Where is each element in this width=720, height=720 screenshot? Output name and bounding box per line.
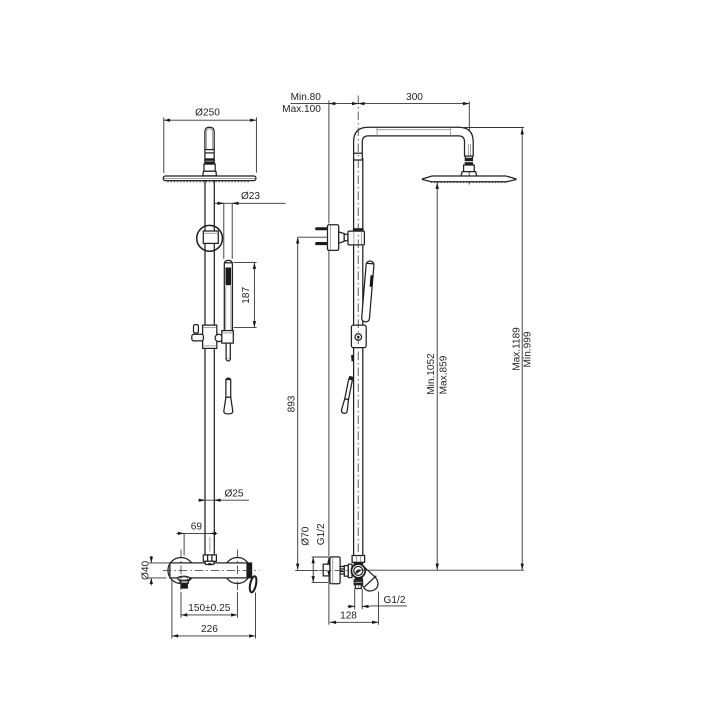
- svg-text:G1/2: G1/2: [384, 595, 406, 606]
- svg-text:187: 187: [241, 286, 252, 303]
- svg-text:Min.999: Min.999: [523, 331, 534, 367]
- svg-text:Max.100: Max.100: [282, 104, 321, 115]
- svg-text:Max.1189: Max.1189: [511, 327, 522, 371]
- svg-text:Min.1052: Min.1052: [426, 353, 437, 395]
- svg-text:226: 226: [201, 624, 218, 635]
- svg-text:Ø250: Ø250: [195, 108, 220, 119]
- svg-text:Min.80: Min.80: [291, 92, 322, 103]
- svg-text:300: 300: [406, 92, 423, 103]
- svg-text:128: 128: [340, 610, 357, 621]
- svg-text:69: 69: [191, 522, 203, 533]
- svg-text:Max.859: Max.859: [438, 355, 449, 394]
- svg-text:150±0.25: 150±0.25: [188, 603, 230, 614]
- svg-text:Ø25: Ø25: [224, 488, 243, 499]
- svg-text:Ø40: Ø40: [141, 560, 152, 579]
- svg-text:893: 893: [286, 395, 297, 412]
- svg-text:G1/2: G1/2: [316, 523, 327, 545]
- svg-text:Ø23: Ø23: [241, 191, 260, 202]
- svg-text:Ø70: Ø70: [301, 526, 312, 545]
